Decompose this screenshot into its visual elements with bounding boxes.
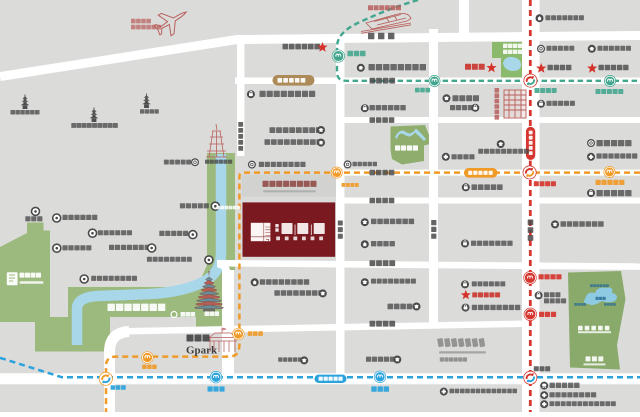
svg-text:Gpark: Gpark [186, 345, 218, 357]
